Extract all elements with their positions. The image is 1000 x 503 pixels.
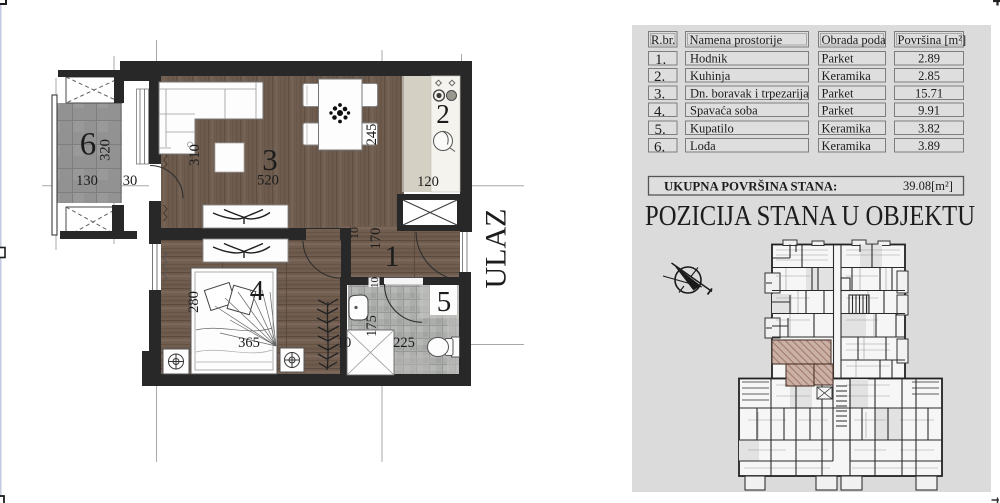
svg-text:1: 1	[385, 240, 400, 273]
svg-text:120: 120	[417, 174, 439, 190]
svg-text:POZICIJA STANA U OBJEKTU: POZICIJA STANA U OBJEKTU	[645, 201, 975, 232]
svg-text:6.: 6.	[654, 140, 665, 156]
svg-text:Kupatilo: Kupatilo	[690, 122, 734, 136]
svg-text:2.85: 2.85	[918, 69, 940, 83]
svg-text:R.br.: R.br.	[651, 33, 675, 47]
svg-text:Kuhinja: Kuhinja	[690, 69, 731, 83]
svg-text:Keramika: Keramika	[822, 139, 872, 153]
svg-text:4: 4	[250, 275, 265, 307]
svg-text:1.: 1.	[655, 52, 666, 68]
svg-text:3.: 3.	[654, 87, 665, 103]
svg-text:Hodnik: Hodnik	[690, 52, 728, 66]
svg-text:10: 10	[337, 335, 352, 351]
svg-text:Obrada poda: Obrada poda	[822, 33, 887, 47]
svg-text:4.: 4.	[654, 104, 665, 120]
svg-text:5.: 5.	[655, 122, 666, 138]
svg-text:245: 245	[364, 124, 380, 146]
svg-text:Keramika: Keramika	[822, 69, 872, 83]
svg-text:Površina [m²]: Površina [m²]	[898, 33, 967, 47]
svg-text:3.82: 3.82	[918, 122, 940, 136]
svg-text:2: 2	[436, 99, 450, 129]
svg-text:2.89: 2.89	[918, 52, 940, 66]
svg-text:UKUPNA POVRŠINA STANA:: UKUPNA POVRŠINA STANA:	[664, 180, 837, 194]
svg-text:5: 5	[437, 286, 452, 318]
svg-text:6: 6	[80, 127, 97, 163]
svg-text:Namena prostorije: Namena prostorije	[690, 33, 783, 47]
svg-text:9.91: 9.91	[918, 104, 940, 118]
svg-text:320: 320	[98, 139, 114, 161]
svg-text:310: 310	[187, 144, 203, 166]
svg-text:Parket: Parket	[822, 104, 854, 118]
svg-text:225: 225	[393, 335, 415, 351]
svg-text:170: 170	[368, 228, 384, 250]
svg-text:10: 10	[369, 277, 381, 289]
svg-text:520: 520	[257, 173, 279, 189]
svg-text:3.89: 3.89	[918, 139, 940, 153]
svg-text:15.71: 15.71	[915, 87, 943, 101]
svg-text:Keramika: Keramika	[822, 122, 872, 136]
svg-text:280: 280	[186, 291, 202, 313]
svg-text:Parket: Parket	[822, 87, 854, 101]
svg-text:2.: 2.	[654, 69, 665, 85]
svg-text:Spavaća soba: Spavaća soba	[690, 104, 758, 118]
svg-text:10: 10	[347, 227, 361, 239]
svg-text:39.08[m²]: 39.08[m²]	[903, 179, 953, 193]
svg-text:ULAZ: ULAZ	[480, 209, 513, 289]
svg-text:130: 130	[76, 173, 98, 189]
svg-text:Lođa: Lođa	[690, 139, 716, 153]
svg-text:Parket: Parket	[822, 52, 854, 66]
svg-text:Dn. boravak i trpezarija: Dn. boravak i trpezarija	[690, 87, 809, 101]
svg-text:365: 365	[238, 335, 260, 351]
svg-text:30: 30	[123, 173, 138, 189]
svg-text:175: 175	[364, 315, 380, 337]
